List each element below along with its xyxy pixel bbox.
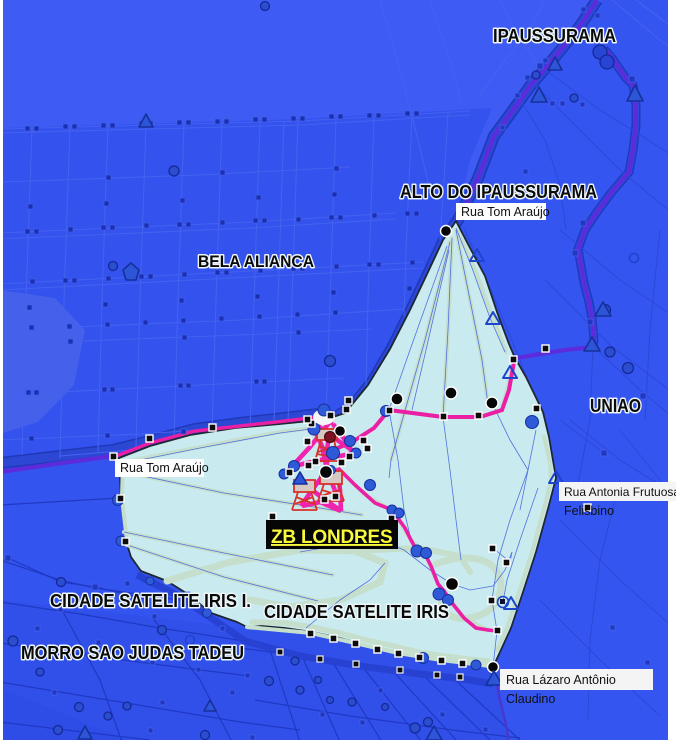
svg-text:Rua Tom Araújo: Rua Tom Araújo bbox=[461, 205, 550, 219]
svg-text:Rua Antonia Frutuosa: Rua Antonia Frutuosa bbox=[564, 485, 676, 499]
svg-text:UNIAO: UNIAO bbox=[590, 396, 641, 416]
svg-text:Rua Tom Araújo: Rua Tom Araújo bbox=[120, 461, 209, 475]
svg-text:ALTO DO IPAUSSURAMA: ALTO DO IPAUSSURAMA bbox=[400, 181, 597, 202]
svg-text:MORRO SAO JUDAS TADEU: MORRO SAO JUDAS TADEU bbox=[21, 642, 244, 663]
svg-text:CIDADE SATELITE IRIS I.: CIDADE SATELITE IRIS I. bbox=[50, 590, 251, 611]
svg-text:ZB LONDRES: ZB LONDRES bbox=[271, 527, 393, 548]
svg-text:Felisbino: Felisbino bbox=[564, 504, 614, 518]
svg-text:IPAUSSURAMA: IPAUSSURAMA bbox=[493, 25, 616, 46]
svg-text:CIDADE SATELITE IRIS: CIDADE SATELITE IRIS bbox=[264, 602, 449, 622]
svg-text:BELA ALIANCA: BELA ALIANCA bbox=[198, 252, 314, 271]
svg-text:Rua Lázaro Antônio: Rua Lázaro Antônio bbox=[506, 673, 616, 687]
svg-text:Claudino: Claudino bbox=[506, 692, 555, 706]
